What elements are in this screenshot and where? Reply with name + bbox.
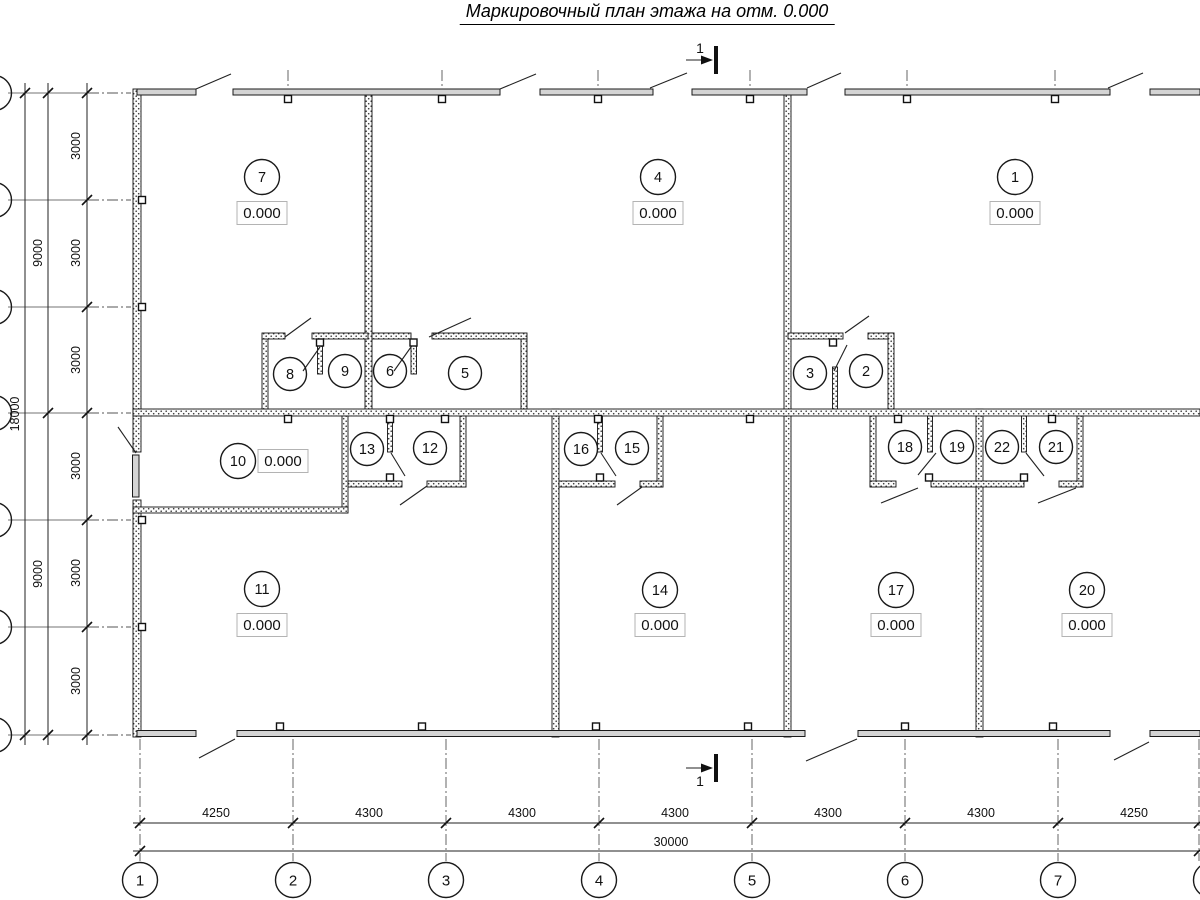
room-number-16: 16 <box>573 442 589 458</box>
axis-number-4: 4 <box>595 873 603 890</box>
axis-number-1: 1 <box>136 873 144 890</box>
room-number-8: 8 <box>286 367 294 383</box>
room-label-2: 2 <box>850 355 883 388</box>
elevation-4: 0.000 <box>639 205 677 222</box>
door-swings-layer <box>118 73 1149 761</box>
room-label-16: 16 <box>565 433 598 466</box>
room-label-13: 13 <box>351 433 384 466</box>
axis-number-3: 3 <box>442 873 450 890</box>
room-label-1: 1 0.000 <box>990 160 1040 225</box>
room-number-22: 22 <box>994 440 1010 456</box>
dim-left-9000-2: 9000 <box>31 560 45 588</box>
room-number-4: 4 <box>654 170 662 186</box>
section-mark-top: 1 <box>686 40 718 74</box>
room-number-20: 20 <box>1079 583 1095 599</box>
room-label-6: 6 <box>374 355 407 388</box>
room-label-14: 14 0.000 <box>635 573 685 637</box>
section-mark-bottom: 1 <box>686 754 718 789</box>
elevation-1: 0.000 <box>996 205 1034 222</box>
room-number-5: 5 <box>461 366 469 382</box>
axis-lines-layer <box>8 70 1199 861</box>
dim-bottom-1: 4250 <box>202 806 230 820</box>
dim-left-3000-2: 3000 <box>69 239 83 267</box>
elevation-11: 0.000 <box>243 617 281 634</box>
dim-bottom-3: 4300 <box>508 806 536 820</box>
room-label-20: 20 0.000 <box>1062 573 1112 637</box>
dim-bottom-5: 4300 <box>814 806 842 820</box>
section-label-bottom: 1 <box>696 773 704 789</box>
room-number-19: 19 <box>949 440 965 456</box>
axis-bubble-8 <box>1194 863 1200 898</box>
room-number-11: 11 <box>254 582 269 598</box>
elevation-7: 0.000 <box>243 205 281 222</box>
axis-number-2: 2 <box>289 873 297 890</box>
room-number-12: 12 <box>422 441 438 457</box>
dim-left-3000-4: 3000 <box>69 452 83 480</box>
room-number-18: 18 <box>897 440 913 456</box>
room-number-10: 10 <box>230 454 246 470</box>
room-label-12: 12 <box>414 432 447 465</box>
room-label-9: 9 <box>329 355 362 388</box>
room-number-15: 15 <box>624 441 640 457</box>
dim-left-3000-5: 3000 <box>69 559 83 587</box>
dim-left-3000-3: 3000 <box>69 346 83 374</box>
room-label-8: 8 <box>274 358 307 391</box>
axis-number-7: 7 <box>1054 873 1062 890</box>
room-number-9: 9 <box>341 364 349 380</box>
elevation-14: 0.000 <box>641 617 679 634</box>
room-label-19: 19 <box>941 431 974 464</box>
room-number-3: 3 <box>806 366 814 382</box>
room-label-11: 11 0.000 <box>237 572 287 637</box>
room-label-22: 22 <box>986 431 1019 464</box>
dim-bottom-2: 4300 <box>355 806 383 820</box>
floor-plan-canvas: 4250 4300 4300 4300 4300 4300 4250 30000… <box>0 0 1200 900</box>
floor-plan-page: Маркировочный план этажа на отм. 0.000 <box>0 0 1200 900</box>
room-label-5: 5 <box>449 357 482 390</box>
room-number-21: 21 <box>1048 440 1064 456</box>
room-number-2: 2 <box>862 364 870 380</box>
axis-number-5: 5 <box>748 873 756 890</box>
room-number-7: 7 <box>258 170 266 186</box>
room-label-21: 21 <box>1040 431 1073 464</box>
room-number-17: 17 <box>888 583 904 599</box>
elevation-17: 0.000 <box>877 617 915 634</box>
dim-left-9000-1: 9000 <box>31 239 45 267</box>
axis-number-6: 6 <box>901 873 909 890</box>
room-number-14: 14 <box>652 583 668 599</box>
dimension-lines-layer <box>20 83 1200 856</box>
room-label-7: 7 0.000 <box>237 160 287 225</box>
elevation-10: 0.000 <box>264 453 302 470</box>
room-label-18: 18 <box>889 431 922 464</box>
dim-left-18000: 18000 <box>8 397 22 432</box>
walls-layer <box>133 89 1200 737</box>
room-label-4: 4 0.000 <box>633 160 683 225</box>
dim-left-3000-6: 3000 <box>69 667 83 695</box>
elevation-20: 0.000 <box>1068 617 1106 634</box>
room-label-15: 15 <box>616 432 649 465</box>
section-label-top: 1 <box>696 40 704 56</box>
dim-bottom-7: 4250 <box>1120 806 1148 820</box>
dim-bottom-total: 30000 <box>654 835 689 849</box>
room-label-3: 3 <box>794 357 827 390</box>
room-label-10: 10 0.000 <box>221 444 309 479</box>
dim-left-3000-1: 3000 <box>69 132 83 160</box>
room-number-1: 1 <box>1011 170 1019 186</box>
dim-bottom-4: 4300 <box>661 806 689 820</box>
room-number-13: 13 <box>359 442 375 458</box>
dim-bottom-6: 4300 <box>967 806 995 820</box>
room-label-17: 17 0.000 <box>871 573 921 637</box>
room-number-6: 6 <box>386 364 394 380</box>
